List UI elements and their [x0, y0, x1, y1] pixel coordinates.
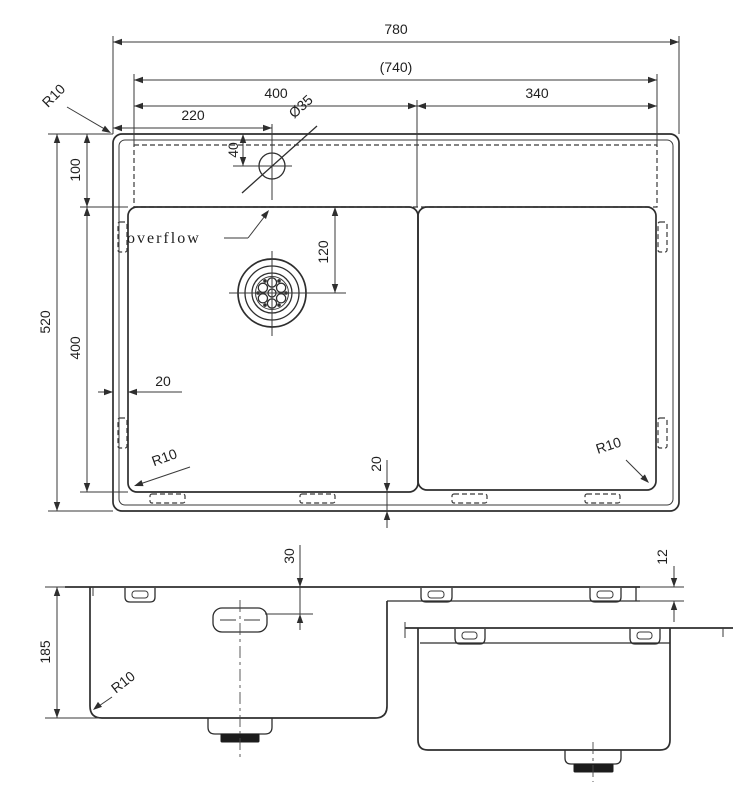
dim-label-400-top: 400: [264, 85, 288, 101]
dim-label-400-left: 400: [67, 336, 83, 360]
dim-label-40: 40: [225, 142, 241, 158]
top-view: 780 (740) 400 340 220: [37, 21, 679, 528]
dim-overall-depth: 520: [37, 134, 113, 511]
r10-bowl-label: R10: [149, 445, 179, 469]
dim-side-gap: 20: [98, 373, 182, 395]
dim-faucet-offset: 220: [113, 107, 272, 131]
dim-label-780: 780: [384, 21, 408, 37]
side-bowl-outline: [418, 628, 670, 750]
dim-label-100: 100: [67, 158, 83, 182]
dim-label-12: 12: [654, 549, 670, 565]
faucet-hole: [242, 124, 317, 200]
outer-rim-inner-line: [119, 140, 673, 505]
dim-label-185: 185: [37, 640, 53, 664]
dim-label-30: 30: [281, 548, 297, 564]
sink-technical-drawing: 780 (740) 400 340 220: [0, 0, 742, 800]
dim-label-dia35: Ø35: [285, 91, 316, 121]
radius-callout-right: R10: [594, 434, 651, 486]
radius-callout-front: R10: [91, 668, 138, 713]
dim-label-220: 220: [181, 107, 205, 123]
outer-rim: [113, 134, 679, 511]
r10-front-label: R10: [108, 668, 138, 697]
radius-callout-top-left: R10: [39, 81, 113, 136]
dim-rim-width: (740): [134, 59, 657, 145]
deck-dashed-outline: [134, 145, 657, 207]
dim-label-20-left: 20: [155, 373, 171, 389]
r10-right-label: R10: [594, 434, 624, 457]
dim-label-20-bottom: 20: [368, 456, 384, 472]
dim-label-120: 120: [315, 240, 331, 264]
dim-bowl-and-right-width: 400 340: [134, 85, 657, 207]
overflow-callout: overflow: [127, 208, 272, 247]
overflow-label: overflow: [127, 230, 201, 247]
dim-faucet-hole-offset: 40: [225, 134, 254, 166]
dim-label-520: 520: [37, 310, 53, 334]
front-clips: [125, 588, 621, 602]
radius-callout-bowl: R10: [133, 445, 190, 489]
diameter-leader: [242, 126, 317, 193]
front-view: 185 30 12 R10: [37, 545, 684, 757]
drain-strainer: [229, 251, 316, 336]
dim-label-340: 340: [525, 85, 549, 101]
r10-top-left-label: R10: [39, 81, 69, 111]
dim-drain-offset: 120: [315, 207, 346, 293]
mounting-clips: [118, 222, 667, 503]
drawing-sheet: 780 (740) 400 340 220: [0, 0, 742, 800]
side-clips: [455, 629, 660, 644]
front-bowl-outline: [90, 587, 387, 718]
dim-rim-thickness: 12: [640, 549, 684, 622]
side-view: [405, 622, 733, 782]
dim-label-740: (740): [380, 59, 413, 75]
